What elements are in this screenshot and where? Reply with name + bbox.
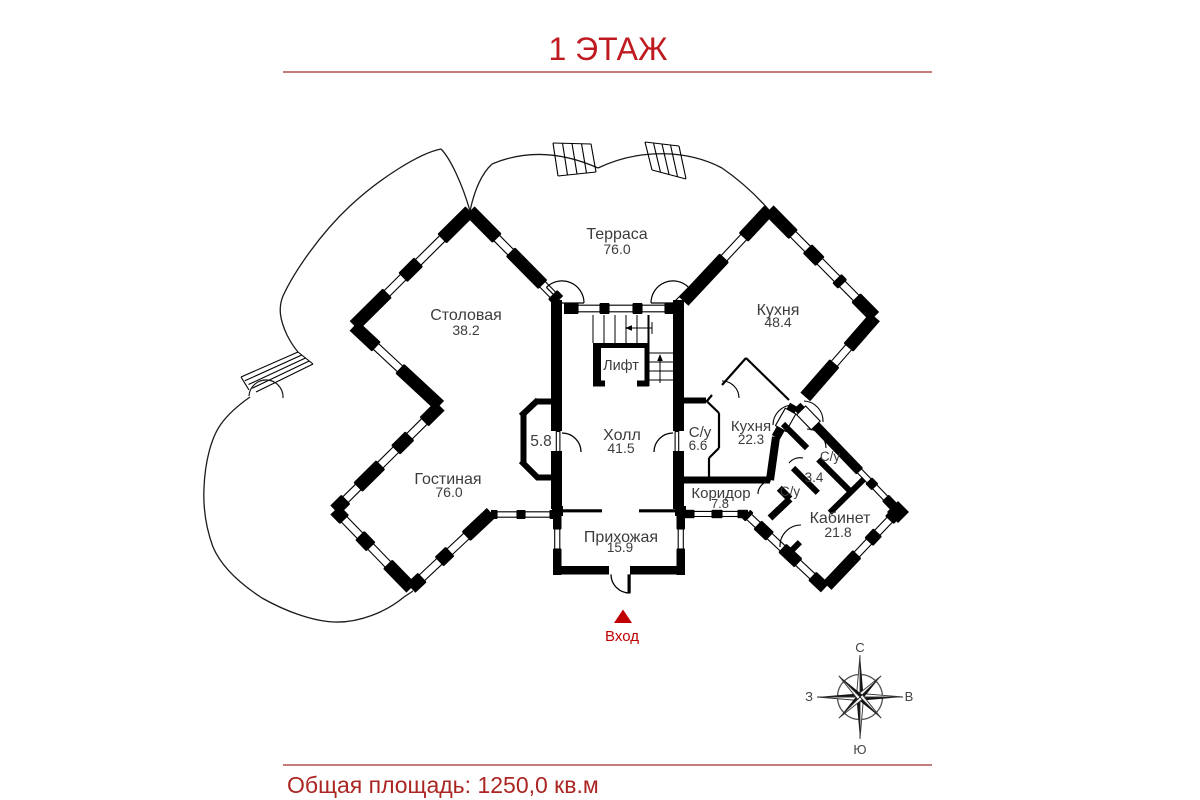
svg-text:76.0: 76.0 (603, 241, 630, 257)
svg-text:41.5: 41.5 (607, 440, 634, 456)
svg-text:6.6: 6.6 (689, 438, 708, 453)
svg-text:3.4: 3.4 (805, 470, 824, 485)
svg-text:5.8: 5.8 (530, 433, 552, 450)
svg-text:38.2: 38.2 (452, 322, 479, 338)
svg-text:Общая площадь: 1250,0 кв.м: Общая площадь: 1250,0 кв.м (287, 772, 599, 798)
svg-text:15.9: 15.9 (607, 540, 633, 555)
svg-text:В: В (905, 689, 914, 704)
svg-text:1 ЭТАЖ: 1 ЭТАЖ (548, 31, 668, 67)
svg-text:22.3: 22.3 (738, 432, 764, 447)
svg-text:48.4: 48.4 (764, 314, 791, 330)
svg-text:С/у: С/у (820, 449, 841, 464)
svg-text:З: З (805, 689, 813, 704)
svg-text:С/у: С/у (780, 484, 801, 499)
svg-text:Вход: Вход (605, 628, 639, 645)
svg-text:21.8: 21.8 (824, 524, 851, 540)
svg-text:Ю: Ю (853, 742, 866, 757)
svg-text:С: С (855, 640, 864, 655)
svg-text:76.0: 76.0 (435, 484, 462, 500)
svg-text:7.8: 7.8 (711, 496, 729, 511)
svg-text:Лифт: Лифт (603, 358, 639, 374)
